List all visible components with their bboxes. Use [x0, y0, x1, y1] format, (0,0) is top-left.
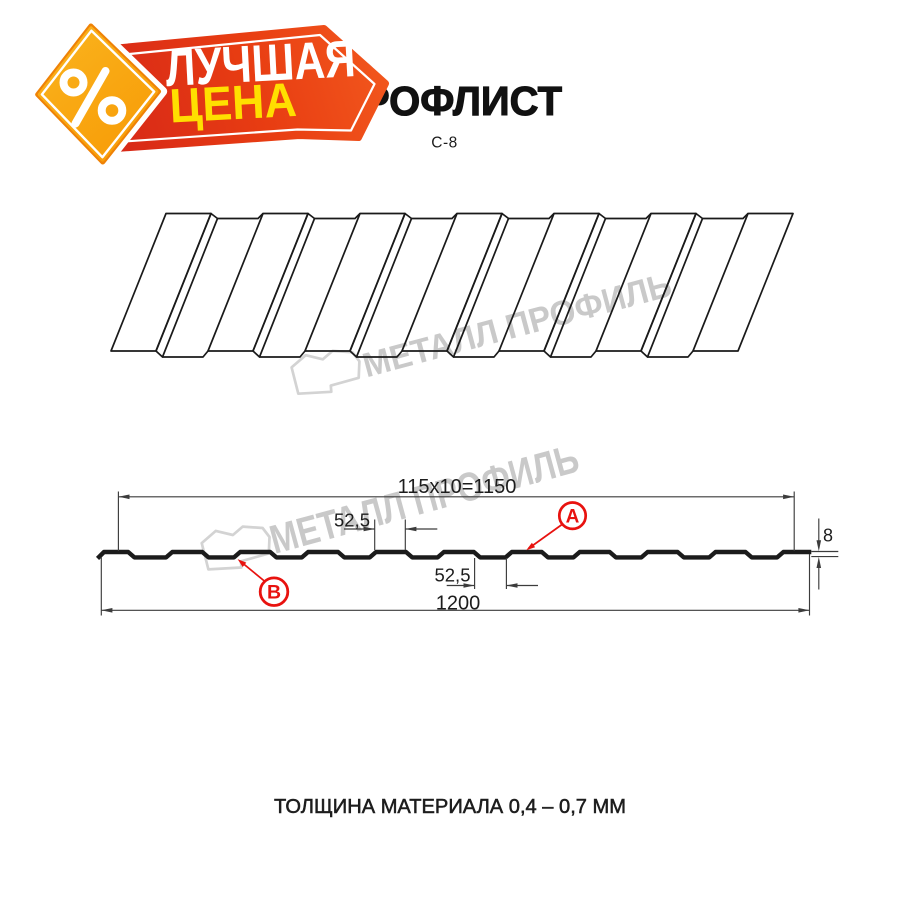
svg-text:В: В — [267, 582, 281, 604]
svg-text:52,5: 52,5 — [434, 565, 470, 586]
svg-text:52,5: 52,5 — [334, 510, 370, 531]
svg-text:1200: 1200 — [436, 592, 481, 614]
svg-text:ЦЕНА: ЦЕНА — [168, 74, 298, 134]
svg-text:115x10=1150: 115x10=1150 — [398, 476, 517, 498]
svg-text:С-8: С-8 — [431, 135, 457, 152]
svg-text:А: А — [566, 506, 580, 527]
svg-text:ТОЛЩИНА МАТЕРИАЛА 0,4 – 0,7 ММ: ТОЛЩИНА МАТЕРИАЛА 0,4 – 0,7 ММ — [274, 795, 626, 818]
svg-text:8: 8 — [823, 526, 833, 546]
svg-text:РОФЛИСТ: РОФЛИСТ — [363, 78, 562, 124]
